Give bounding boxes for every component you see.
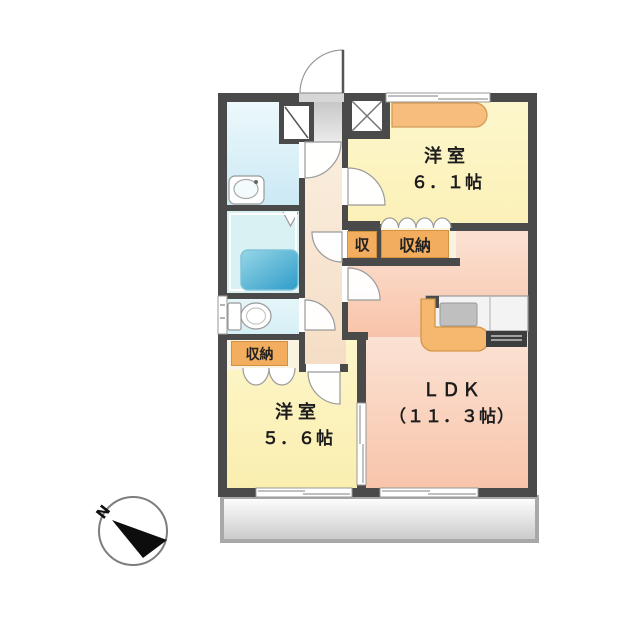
compass: [99, 497, 167, 565]
kitchen-counter: [421, 296, 528, 351]
toilet: [228, 303, 271, 330]
balcony: [222, 497, 537, 541]
kitchen-sink: [440, 303, 477, 326]
kitchen-stove: [486, 331, 527, 347]
pipe-space: [344, 93, 390, 139]
bathtub: [241, 250, 298, 290]
window-bedroom-a-top: [386, 93, 490, 102]
floor-plan-drawing: [0, 0, 640, 640]
ldk-floor-lower: [360, 337, 534, 495]
window-toilet-louver: [218, 296, 227, 334]
door-entry: [300, 50, 343, 93]
window-ldk-bottom: [380, 488, 478, 497]
sliding-door-bedroom-b-ldk: [357, 403, 366, 485]
washing-machine-pan: [279, 101, 314, 144]
floor-plan: 洋室 ６．１帖 洋室 ５．６帖 ＬＤＫ （１１．３帖） 収納 収 収納 N: [0, 0, 640, 640]
sink: [229, 176, 264, 204]
bedroom-a-counter: [392, 103, 487, 127]
window-bedroom-b-bottom: [256, 488, 352, 497]
